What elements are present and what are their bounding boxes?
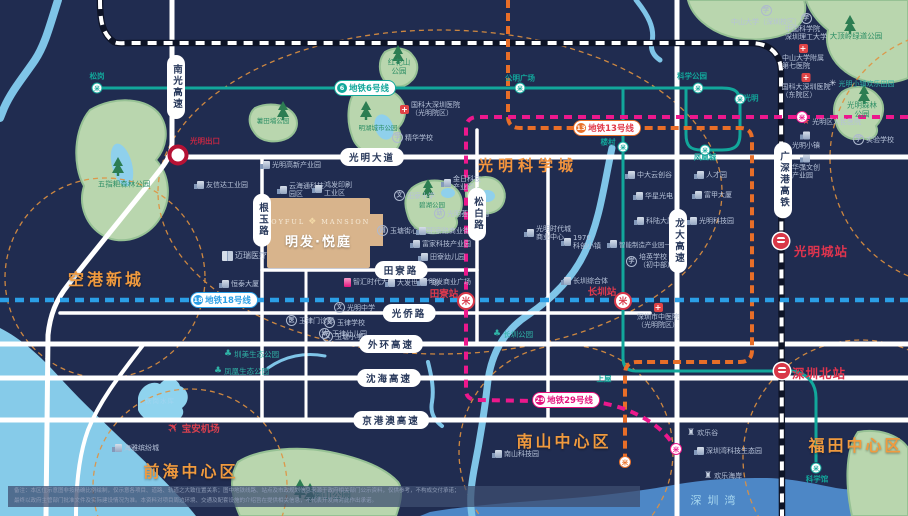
park-shutianpu: 薯田埔公园 xyxy=(257,115,290,125)
poi-siat-univ-text: 中国科学院深圳理工大学 xyxy=(785,25,827,41)
poi-gkd-hospital-east-icon: + xyxy=(802,73,811,82)
station-icon-fenghuangcheng: 米 xyxy=(700,145,711,156)
metro-pill-line29-text: 地铁29号线 xyxy=(547,394,593,406)
poi-huaqiang-wenchuang-text: 华强文创产业园 xyxy=(792,163,820,179)
road-pill-tianliao-rd: 田寮路 xyxy=(375,261,428,279)
station-label-songgang-text: 松岗 xyxy=(90,71,105,82)
station-icon-science-park: 米 xyxy=(693,83,704,94)
disclaimer-line2: 最终以政府主管部门批准文件及实际建设情况为准。本资料对项目周边环境、交通及配套设… xyxy=(14,497,634,507)
road-pill-guangming-ave: 光明大道 xyxy=(340,148,404,166)
poi-shiyan-school: 学实验学校 xyxy=(853,134,894,145)
park-wuzhipa-text: 五指耙森林公园 xyxy=(98,179,151,190)
poi-guangminghui-kg-icon: 幼 xyxy=(434,208,445,219)
station-icon-line29-north: 米 xyxy=(796,111,808,123)
poi-sysu-7th-hospital-icon: + xyxy=(799,44,808,53)
poi-shenzhenwan-techpark: 深圳湾科技生态园 xyxy=(697,446,762,456)
poi-1970-icon xyxy=(564,238,571,246)
road-pill-guangqiao-rd-text: 光侨路 xyxy=(392,306,427,320)
poi-szzyy-icon: + xyxy=(654,303,663,312)
poi-happy-coast-icon: ♜ xyxy=(704,472,712,481)
station-label-kexueguan: 科学馆 xyxy=(806,474,829,485)
district-futian-text: 福田中心区 xyxy=(808,432,903,456)
poi-youxinda-text: 友信达工业园 xyxy=(206,180,248,190)
poi-changzhen-complex-icon xyxy=(564,277,571,285)
station-label-kexueguan-text: 科学馆 xyxy=(806,474,829,485)
poi-changzhen-complex-text: 长圳综合体 xyxy=(573,276,608,286)
park-dadingling-text: 大顶岭绿道公园 xyxy=(830,31,883,42)
poi-hongfa-icon xyxy=(315,185,322,193)
district-konggang-text: 空港新城 xyxy=(68,266,144,290)
poi-happy-valley-icon: ♜ xyxy=(687,429,695,438)
poi-happy-farm: ✳光明小镇欢乐田园 xyxy=(829,79,895,89)
poi-dafa-plaza-icon xyxy=(388,279,395,287)
metro-pill-line18-badge-icon: 18 xyxy=(193,295,203,305)
district-science-city-text: 光明科学城 xyxy=(478,155,578,176)
metro-pill-line13-text: 地铁13号线 xyxy=(588,122,634,134)
road-pill-guangqiao-rd: 光侨路 xyxy=(383,304,436,322)
bay-shenzhenwan-text: 深圳湾 xyxy=(691,492,742,508)
station-label-loucun: 楼村 xyxy=(601,137,616,148)
poi-tianliao-biz-street-icon xyxy=(419,227,426,235)
road-pill-songbai-rd-text: 松白路 xyxy=(470,197,484,232)
exit-label-guangming: 光明出口 xyxy=(190,136,220,147)
road-pill-tianliao-rd-text: 田寮路 xyxy=(384,263,419,277)
poi-hengtai: 恒泰大厦 xyxy=(222,279,259,289)
lake-tiegang-text: 铁岗水库 xyxy=(145,395,175,405)
station-icon-kexueguan: 米 xyxy=(811,463,822,474)
disclaimer: 备注：本区位示意图非按精确比例绘制，仅示意各项目、道路、轨道之大致位置关系；图中… xyxy=(8,486,640,507)
park-wuzhipa: 五指耙森林公园 xyxy=(98,179,151,190)
road-pill-guangming-ave-text: 光明大道 xyxy=(349,150,395,164)
poi-siat-univ-icon: 学 xyxy=(801,13,812,24)
poi-tianliao-biz-street-text: 田寮路商业街 xyxy=(428,226,470,236)
poi-hengtai-text: 恒泰大厦 xyxy=(231,279,259,289)
poi-happy-coast-text: 欢乐海岸 xyxy=(714,471,742,481)
poi-guangming-techpark-text: 光明科技园 xyxy=(699,216,734,226)
poi-huaxing-icon xyxy=(636,192,643,200)
park-fenghuang-eco: ♣凤凰生态公园 xyxy=(214,366,269,377)
park-dadingling: 大顶岭绿道公园 xyxy=(830,31,883,42)
station-icon-changzhen: 米 xyxy=(614,292,632,310)
poi-yulv-school-icon: 文 xyxy=(324,317,335,328)
poi-shenzhenwan-techpark-text: 深圳湾科技生态园 xyxy=(706,446,762,456)
station-label-shangwu-text: 上屋 xyxy=(597,374,612,385)
station-label-changzhen-text: 长圳站 xyxy=(588,284,617,298)
district-konggang: 空港新城 xyxy=(68,266,144,290)
metro-pill-line13-badge-icon: 13 xyxy=(576,123,586,133)
road-pill-shenhai-expwy-text: 沈海高速 xyxy=(366,371,412,385)
station-label-guangmingcheng-text: 光明城站 xyxy=(794,241,848,260)
poi-guangming-middle: 文光明中学 xyxy=(334,302,375,313)
poi-guangming-techpark-icon xyxy=(690,217,697,225)
poi-haiya-icon xyxy=(115,444,122,452)
park-changzhen: ♣长圳公园 xyxy=(493,329,533,340)
station-label-shangwu: 上屋 xyxy=(597,374,612,385)
poi-changzhen-complex: 长圳综合体 xyxy=(564,276,608,286)
exit-label-guangming-text: 光明出口 xyxy=(190,136,220,147)
metro-pill-line29-badge-icon: 29 xyxy=(535,395,545,405)
rail-pill-guangshengang-text: 广深港高铁 xyxy=(776,151,790,209)
road-pill-nanguang-expwy-text: 南光高速 xyxy=(169,64,183,110)
poi-shidaicheng-icon xyxy=(527,229,534,237)
project-logo: JOYFUL ❖ MANSION xyxy=(267,217,371,227)
project-parcel: JOYFUL ❖ MANSION 明发·悦庭 xyxy=(267,198,370,268)
park-zhenmei-eco-icon: ♣ xyxy=(224,350,232,359)
station-label-shenzhenbei: 深圳北站 xyxy=(792,363,846,382)
district-futian: 福田中心区 xyxy=(808,432,903,456)
poi-tianliao-biz-street: 田寮路商业街 xyxy=(419,226,470,236)
poi-huaxing: 华星光电 xyxy=(636,191,673,201)
airport-baoan: ✈宝安机场 xyxy=(168,421,220,435)
poi-kelu-icon xyxy=(637,217,644,225)
poi-mingfa-plaza: 明发商业广场 xyxy=(420,277,471,287)
park-honghuashan-text: 红花山公园 xyxy=(388,58,411,75)
road-pill-waihuan-expwy-text: 外环高速 xyxy=(368,337,414,351)
poi-fujia-tower: 富甲大厦 xyxy=(695,190,732,200)
station-label-tianliao: 田寮站 xyxy=(430,286,459,300)
poi-smart-mfg-icon xyxy=(610,240,617,248)
poi-mairui-icon xyxy=(222,251,233,261)
road-pill-shenhai-expwy: 沈海高速 xyxy=(357,369,421,387)
lake-tiegang: 铁岗水库 xyxy=(145,395,175,405)
poi-szzyy: +深圳市中医院（光明院区） xyxy=(637,303,679,329)
poi-yulv-clinic-icon: 医 xyxy=(286,315,297,326)
poi-jinghua-school-icon: 学 xyxy=(392,132,403,143)
poi-guangming-middle-icon: 文 xyxy=(334,302,345,313)
poi-1970-text: 1970科创小镇 xyxy=(573,234,601,250)
poi-mingfa-plaza-text: 明发商业广场 xyxy=(429,277,471,287)
poi-jinghua-school: 学精华学校 xyxy=(392,132,433,143)
poi-gaoxin-park-icon xyxy=(263,161,270,169)
poi-gaoxin-park: 光明高新产业园 xyxy=(263,160,321,170)
station-icon-songgang: 米 xyxy=(92,83,103,94)
station-icon-shenzhenbei xyxy=(774,363,790,379)
poi-tianliao-primary-text: 田寮小学 xyxy=(407,191,435,201)
station-icon-line13-end: 米 xyxy=(619,456,631,468)
poi-zhihui-tower-icon xyxy=(344,278,351,287)
poi-peiying-school-icon: 学 xyxy=(626,256,637,267)
park-fenghuang-eco-icon: ♣ xyxy=(214,367,222,376)
station-label-guangming: 光明 xyxy=(744,93,759,104)
district-qianhai-text: 前海中心区 xyxy=(143,458,238,482)
station-label-shenzhenbei-text: 深圳北站 xyxy=(792,363,846,382)
poi-guangming-middle-text: 光明中学 xyxy=(347,303,375,313)
poi-youxinda-icon xyxy=(197,181,204,189)
poi-nanshan-techpark-text: 南山科技园 xyxy=(504,449,539,459)
station-label-guangming-text: 光明 xyxy=(744,93,759,104)
poi-fujia-text: 富家科技产业园 xyxy=(422,239,471,249)
poi-fujia-icon xyxy=(413,240,420,248)
road-pill-waihuan-expwy: 外环高速 xyxy=(359,335,423,353)
metro-pill-line18: 18地铁18号线 xyxy=(190,292,258,308)
road-pill-songbai-rd: 松白路 xyxy=(468,188,486,241)
station-icon-guangming: 米 xyxy=(735,94,746,105)
poi-mingfa-plaza-icon xyxy=(420,278,427,286)
poi-happy-farm-icon: ✳ xyxy=(829,80,837,89)
poi-huaqiang-wenchuang-icon xyxy=(803,154,810,162)
poi-haiya: 海雅缤纷城 xyxy=(115,443,159,453)
metro-pill-line6-badge-icon: 6 xyxy=(337,83,347,93)
poi-fujia: 富家科技产业园 xyxy=(413,239,471,249)
park-shutianpu-text: 薯田埔公园 xyxy=(257,115,290,125)
poi-rencaiyuan-icon xyxy=(697,171,704,179)
poi-zhongda-yunchuanggu: 中大云创谷 xyxy=(628,170,672,180)
poi-gkd-hospital-guangming-icon: + xyxy=(400,105,409,114)
metro-pill-line6: 6地铁6号线 xyxy=(334,80,396,96)
park-fenghuang-eco-text: 凤凰生态公园 xyxy=(224,366,269,377)
poi-tianliao-kg: 田寮幼儿园 xyxy=(421,252,465,262)
airport-baoan-text: 宝安机场 xyxy=(182,421,220,435)
station-icon-tianliao: 米 xyxy=(457,292,475,310)
poi-hongfa: 鸿发印刷工业区 xyxy=(315,181,352,197)
poi-zhongda-yunchuanggu-icon xyxy=(628,171,635,179)
river xyxy=(0,0,58,118)
road-pill-jinggangao-expwy: 京港澳高速 xyxy=(353,411,429,429)
poi-huaxing-text: 华星光电 xyxy=(645,191,673,201)
poi-yulv-school: 文玉律学校 xyxy=(324,317,365,328)
road-pill-longda-expwy-text: 龙大高速 xyxy=(671,218,685,264)
park-zhenmei-eco: ♣圳美生态公园 xyxy=(224,349,279,360)
poi-mairui: 迈瑞医疗 xyxy=(222,250,267,261)
metro-pill-line13: 13地铁13号线 xyxy=(573,120,641,136)
poi-szzyy-text: 深圳市中医院（光明院区） xyxy=(637,313,679,329)
poi-happy-valley-text: 欢乐谷 xyxy=(697,428,718,438)
poi-guangming-peoples-hospital-text: 光明区人民医院 xyxy=(812,117,861,127)
poi-youxinda: 友信达工业园 xyxy=(197,180,248,190)
poi-siat-univ: 学中国科学院深圳理工大学 xyxy=(785,13,827,41)
poi-guangming-town: 光明小镇 xyxy=(792,132,820,151)
metro-pill-line29: 29地铁29号线 xyxy=(532,392,600,408)
poi-gaoxin-park-text: 光明高新产业园 xyxy=(272,160,321,170)
exit-icon-guangming xyxy=(168,145,189,166)
river xyxy=(428,362,442,426)
poi-guangming-peoples-hospital: ★光明区人民医院 xyxy=(802,117,861,127)
road-pill-genyu-rd-text: 根玉路 xyxy=(255,203,269,238)
rail-pill-guangshengang: 广深港高铁 xyxy=(774,142,792,218)
poi-hongfa-text: 鸿发印刷工业区 xyxy=(324,181,352,197)
poi-rencaiyuan: 人才园 xyxy=(697,170,727,180)
location-map: JOYFUL ❖ MANSION 明发·悦庭 备注：本区位示意图非按精确比例绘制… xyxy=(0,0,908,516)
poi-guangming-town-text: 光明小镇 xyxy=(792,141,820,151)
crest-icon: ❖ xyxy=(308,217,318,227)
station-label-guangmingcheng: 光明城站 xyxy=(794,241,848,260)
poi-happy-valley: ♜欢乐谷 xyxy=(687,428,718,438)
poi-shiyan-school-icon: 学 xyxy=(853,134,864,145)
road-pill-nanguang-expwy: 南光高速 xyxy=(167,55,185,119)
poi-gkd-hospital-guangming-text: 国科大深圳医院（光明院区） xyxy=(411,101,460,117)
disclaimer-line1: 备注：本区位示意图非按精确比例绘制，仅示意各项目、道路、轨道之大致位置关系；图中… xyxy=(14,487,634,497)
station-label-loucun-text: 楼村 xyxy=(601,137,616,148)
park-changzhen-text: 长圳公园 xyxy=(503,329,533,340)
poi-sysu-7th-hospital-text: 中山大学附属第七医院 xyxy=(782,54,824,70)
road-pill-jinggangao-expwy-text: 京港澳高速 xyxy=(362,413,420,427)
river xyxy=(636,0,660,60)
poi-gkd-hospital-east: +国科大深圳医院（东院区） xyxy=(782,73,831,99)
station-label-science-park: 科学公园 xyxy=(677,71,707,82)
poi-happy-coast: ♜欢乐海岸 xyxy=(704,471,742,481)
poi-fujia-tower-icon xyxy=(695,191,702,199)
poi-sysu-icon: 学 xyxy=(761,5,772,16)
poi-mairui-text: 迈瑞医疗 xyxy=(235,250,267,261)
poi-huaqiang-wenchuang: 华强文创产业园 xyxy=(792,154,820,179)
poi-tianliao-kg-text: 田寮幼儿园 xyxy=(430,252,465,262)
poi-yutang-jiexin-icon: 园 xyxy=(377,225,388,236)
poi-gkd-hospital-guangming: +国科大深圳医院（光明院区） xyxy=(400,101,460,117)
district-science-city: 光明科学城 xyxy=(478,155,578,176)
poi-nanshan-techpark-icon xyxy=(495,450,502,458)
poi-shenzhenwan-techpark-icon xyxy=(697,447,704,455)
airport-baoan-icon: ✈ xyxy=(165,419,183,437)
district-qianhai: 前海中心区 xyxy=(143,458,238,482)
poi-yulv-school-text: 玉律学校 xyxy=(337,318,365,328)
poi-1970: 1970科创小镇 xyxy=(564,234,601,250)
poi-nanshan-techpark: 南山科技园 xyxy=(495,449,539,459)
station-icon-loucun: 米 xyxy=(618,142,629,153)
poi-tianliao-primary-icon: 文 xyxy=(394,190,405,201)
poi-yunhaitong-icon xyxy=(280,186,287,194)
road-pill-genyu-rd: 根玉路 xyxy=(253,194,271,247)
station-label-science-park-text: 科学公园 xyxy=(677,71,707,82)
park-changzhen-icon: ♣ xyxy=(493,330,501,339)
station-icon-gongming-sq: 米 xyxy=(515,83,526,94)
poi-sysu-7th-hospital: +中山大学附属第七医院 xyxy=(782,44,824,70)
station-label-changzhen: 长圳站 xyxy=(588,284,617,298)
poi-fujia-tower-text: 富甲大厦 xyxy=(704,190,732,200)
park-zhenmei-eco-text: 圳美生态公园 xyxy=(234,349,279,360)
poi-peiying-school: 学培英学校（初中部） xyxy=(626,253,674,269)
poi-haiya-text: 海雅缤纷城 xyxy=(124,443,159,453)
poi-guangming-techpark: 光明科技园 xyxy=(690,216,734,226)
park-minghu-text: 明湖城市公园 xyxy=(359,122,398,132)
poi-yutang-primary-icon: 文 xyxy=(322,331,333,342)
poi-rencaiyuan-text: 人才园 xyxy=(706,170,727,180)
park-minghu: 明湖城市公园 xyxy=(359,122,398,132)
poi-shiyan-school-text: 实验学校 xyxy=(866,135,894,145)
poi-zhongda-yunchuanggu-text: 中大云创谷 xyxy=(637,170,672,180)
poi-happy-farm-text: 光明小镇欢乐田园 xyxy=(839,79,895,89)
poi-tianliao-primary: 文田寮小学 xyxy=(394,190,435,201)
poi-gkd-hospital-east-text: 国科大深圳医院（东院区） xyxy=(782,83,831,99)
poi-smart-mfg: 智能制造产业园一期 xyxy=(610,239,678,249)
poi-hengtai-icon xyxy=(222,280,229,288)
station-label-tianliao-text: 田寮站 xyxy=(430,286,459,300)
project-name: 明发·悦庭 xyxy=(285,231,352,250)
poi-jinri-icon xyxy=(444,179,451,187)
station-label-songgang: 松岗 xyxy=(90,71,105,82)
road-pill-longda-expwy: 龙大高速 xyxy=(669,209,687,273)
poi-tianliao-kg-icon xyxy=(421,253,428,261)
bay-shenzhenwan: 深圳湾 xyxy=(691,492,742,508)
park-honghuashan: 红花山公园 xyxy=(388,58,411,75)
poi-jinghua-school-text: 精华学校 xyxy=(405,133,433,143)
poi-guangming-town-icon xyxy=(803,132,810,140)
station-icon-line29-end: 米 xyxy=(670,443,682,455)
metro-pill-line6-text: 地铁6号线 xyxy=(349,82,389,94)
metro-pill-line18-text: 地铁18号线 xyxy=(205,294,251,306)
station-icon-guangmingcheng xyxy=(773,233,789,249)
poi-yutang-primary: 文玉塘小学 xyxy=(322,331,363,342)
